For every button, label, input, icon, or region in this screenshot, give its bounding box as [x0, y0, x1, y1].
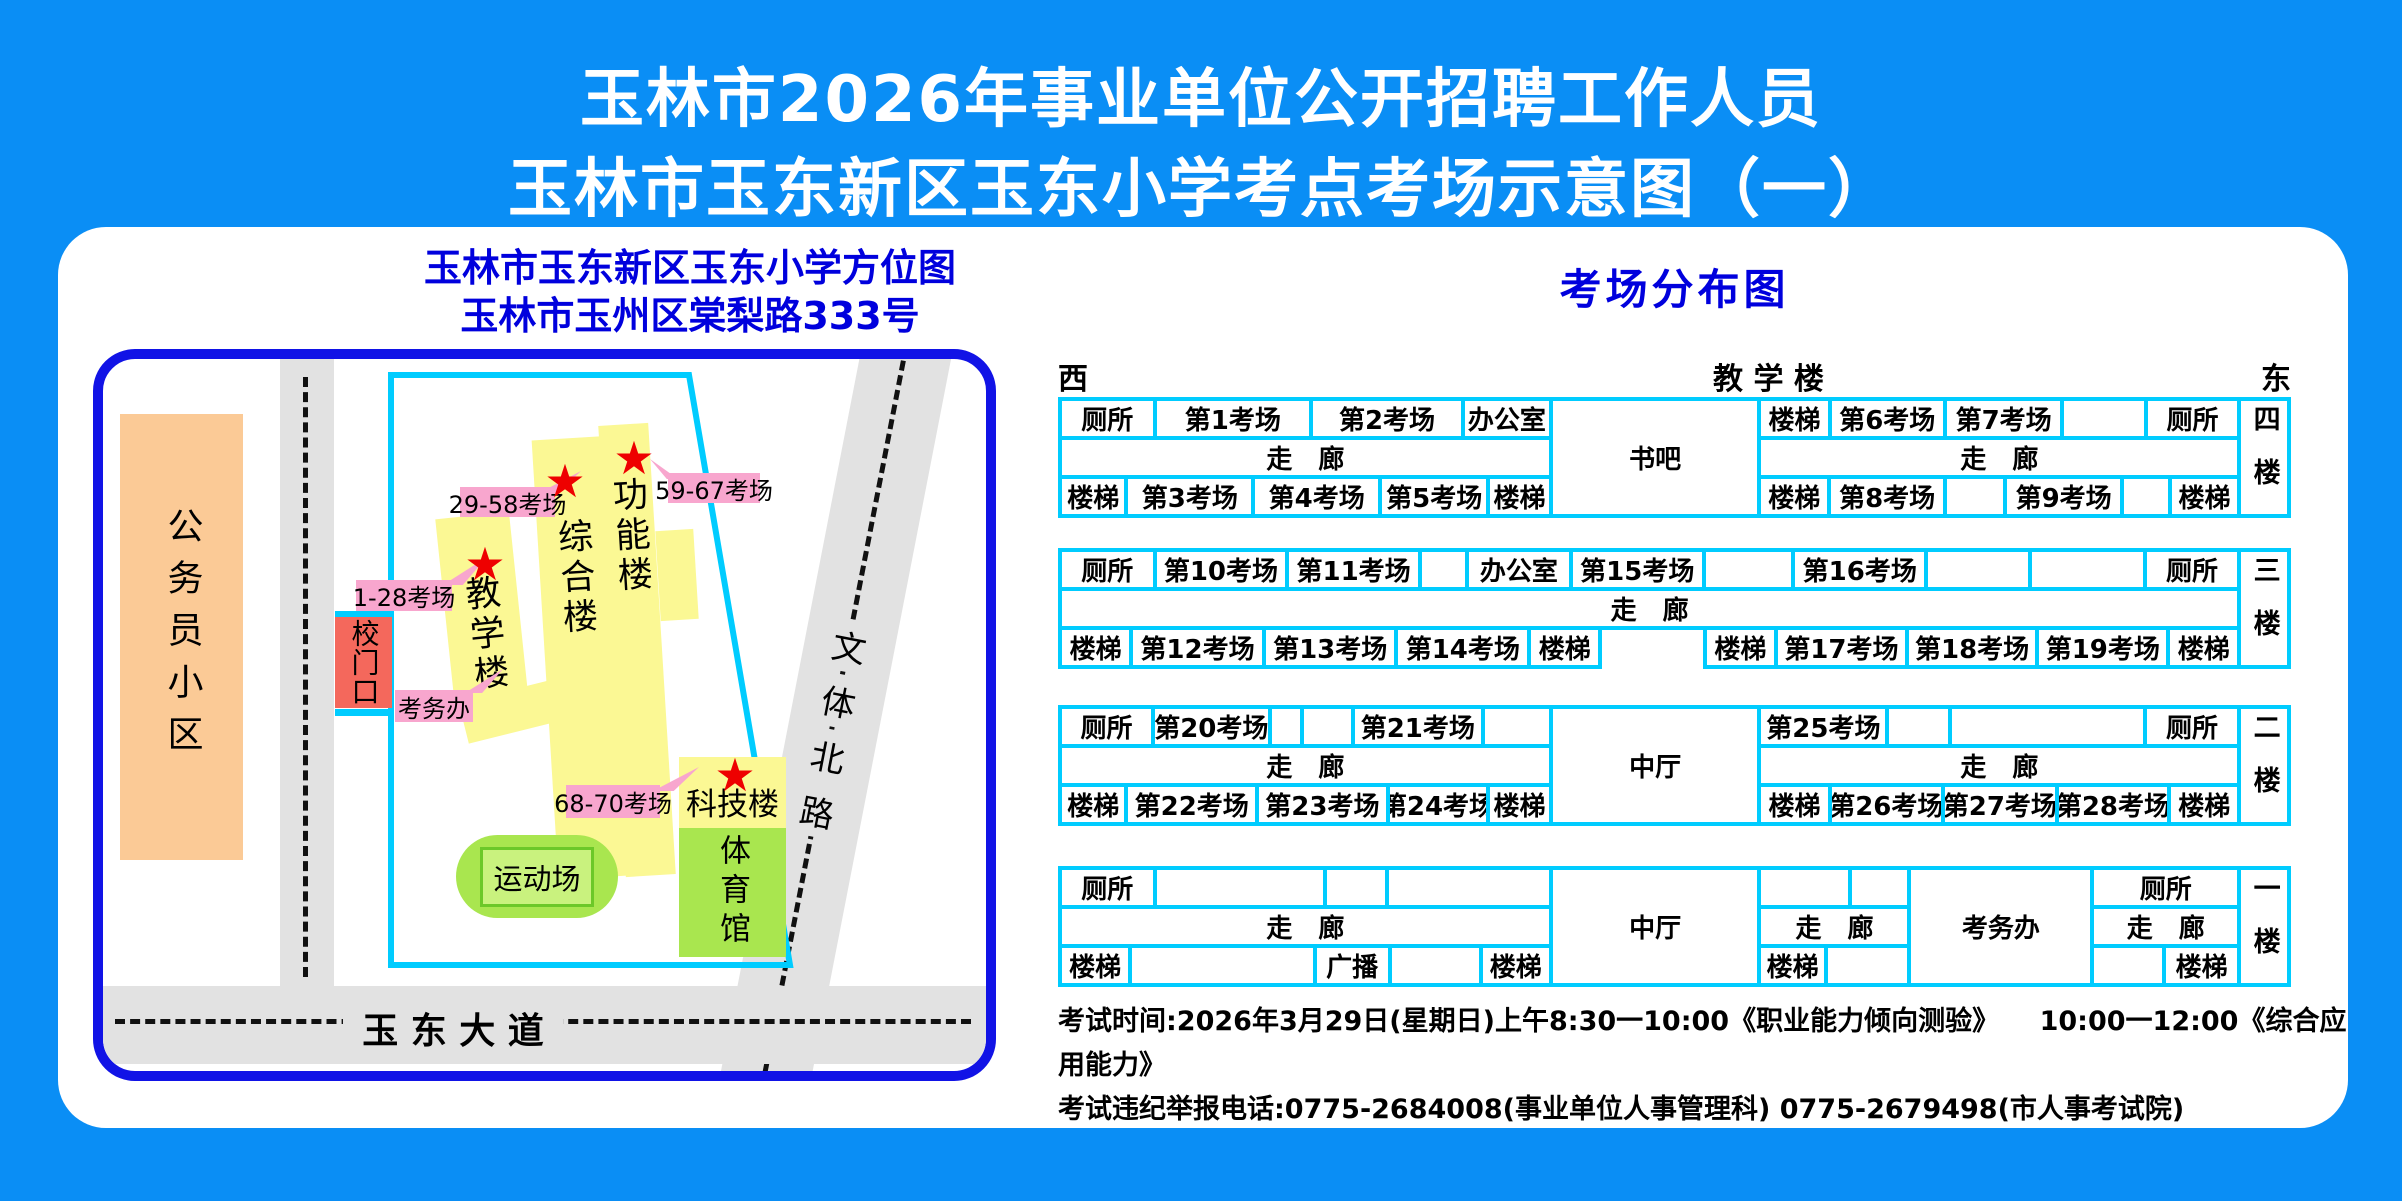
empty-cell [1388, 944, 1483, 987]
room-cell: 办公室 [1461, 397, 1553, 440]
room-cell: 走 廊 [1757, 744, 2241, 787]
room-cell: 楼梯 [2167, 783, 2241, 826]
floor-row: 厕所 [2090, 866, 2241, 909]
floor-row: 走 廊 [1757, 744, 2241, 787]
room-cell: 厕所 [2143, 705, 2241, 748]
floor-row: 楼梯 [2090, 944, 2241, 987]
floor-table-三楼: 厕所第10考场第11考场办公室第15考场第16考场厕所走 廊楼梯第12考场第13… [1058, 548, 2291, 669]
floor-row [1757, 866, 1911, 909]
floor-table-二楼: 厕所第20考场第21考场走 廊楼梯第22考场第23考场第24考场楼梯中厅第25考… [1058, 705, 2291, 826]
room-cell: 楼梯 [1058, 944, 1132, 987]
floor-row: 走 廊 [2090, 905, 2241, 948]
page-title-line1: 玉林市2026年事业单位公开招聘工作人员 [0, 48, 2402, 140]
floor-row: 走 廊 [1058, 744, 1553, 787]
room-cell: 厕所 [2144, 397, 2242, 440]
room-cell: 楼梯 [1058, 475, 1128, 518]
room-cell: 厕所 [1058, 705, 1155, 748]
room-cell: 第8考场 [1827, 475, 1947, 518]
report-phone-note: 考试违纪举报电话:0775-2684008(事业单位人事管理科) 0775-26… [1058, 1088, 2348, 1132]
empty-cell [1323, 866, 1388, 909]
room-cell: 第21考场 [1351, 705, 1486, 748]
building-teaching-label: 教学楼 [453, 573, 516, 698]
empty-cell [1948, 705, 2146, 748]
floor-table-一楼: 厕所走 廊楼梯广播楼梯中厅走 廊楼梯考务办厕所走 廊楼梯一楼 [1058, 866, 2291, 987]
playground: 运动场 [456, 835, 618, 918]
exam-site-star-icon: ★ [612, 436, 656, 480]
empty-cell [1268, 705, 1304, 748]
empty-cell [1943, 475, 2007, 518]
floor-row: 走 廊 [1058, 587, 2241, 630]
floor-row: 楼梯第12考场第13考场第14考场楼梯楼梯第17考场第18考场第19考场楼梯 [1058, 626, 2241, 669]
floor-row: 楼梯第8考场第9考场楼梯 [1757, 475, 2241, 518]
hall-cell: 中厅 [1549, 705, 1762, 826]
building-complex-label: 综合楼 [546, 517, 604, 640]
room-cell: 楼梯 [2166, 626, 2241, 669]
room-cell: 走 廊 [1058, 436, 1553, 479]
room-cell: 第28考场 [2055, 783, 2172, 826]
room-cell: 楼梯 [1703, 626, 1778, 669]
floor-number-label: 三楼 [2245, 556, 2284, 662]
floor-row: 楼梯第22考场第23考场第24考场楼梯 [1058, 783, 1553, 826]
exam-office-label: 考务办 [395, 690, 473, 722]
exam-site-star-icon: ★ [713, 753, 757, 797]
room-cell: 第24考场 [1386, 783, 1490, 826]
room-cell: 第2考场 [1309, 397, 1465, 440]
playground-label: 运动场 [480, 847, 593, 907]
floor-row: 楼梯广播楼梯 [1058, 944, 1553, 987]
floor-row: 第25考场厕所 [1757, 705, 2241, 748]
room-cell: 第1考场 [1153, 397, 1314, 440]
room-cell: 第16考场 [1791, 548, 1928, 591]
floor-section: 走 廊楼梯 [1757, 866, 1911, 987]
empty-cell [1924, 548, 2032, 591]
room-cell: 第12考场 [1129, 626, 1266, 669]
room-cell: 楼梯 [1527, 626, 1602, 669]
room-cell: 楼梯 [1486, 475, 1553, 518]
room-cell: 走 廊 [1058, 905, 1553, 948]
map-content: 文体北路 玉 东 大 道 公务员小区 校门口 教学楼 [103, 359, 986, 1071]
room-cell: 楼梯 [1058, 783, 1128, 826]
floor-table-四楼: 厕所第1考场第2考场办公室走 廊楼梯第3考场第4考场第5考场楼梯书吧楼梯第6考场… [1058, 397, 2291, 518]
room-cell: 第23考场 [1255, 783, 1390, 826]
badge-rooms-68-70: 68-70考场 [566, 785, 660, 818]
badge-rooms-29-58: 29-58考场 [460, 487, 555, 517]
empty-cell [1757, 866, 1851, 909]
room-cell: 楼梯 [1757, 783, 1831, 826]
room-cell: 第26考场 [1828, 783, 1946, 826]
floor-row: 走 廊 [1058, 905, 1553, 948]
empty-cell [1418, 548, 1469, 591]
room-cell: 第3考场 [1124, 475, 1255, 518]
badge-rooms-59-67: 59-67考场 [668, 473, 760, 503]
empty-cell [2090, 944, 2166, 987]
room-cell: 第17考场 [1774, 626, 1909, 669]
empty-cell [2120, 475, 2172, 518]
empty-cell [1702, 548, 1796, 591]
empty-cell [1848, 866, 1912, 909]
empty-cell [1153, 866, 1328, 909]
hall-cell: 中厅 [1549, 866, 1762, 987]
room-cell: 第6考场 [1828, 397, 1947, 440]
badge-rooms-1-28: 1-28考场 [356, 580, 452, 611]
floor-row: 楼梯第3考场第4考场第5考场楼梯 [1058, 475, 1553, 518]
room-cell: 楼梯 [1757, 397, 1831, 440]
floor-section: 厕所走 廊楼梯 [2090, 866, 2241, 987]
room-cell: 第11考场 [1285, 548, 1422, 591]
empty-cell [1128, 944, 1317, 987]
exam-time-note: 考试时间:2026年3月29日(星期日)上午8:30一10:00《职业能力倾向测… [1058, 1000, 2348, 1088]
room-cell: 第25考场 [1757, 705, 1889, 748]
floor-label-cell: 四楼 [2237, 397, 2291, 518]
empty-cell [1481, 705, 1553, 748]
hall-cell: 书吧 [1549, 397, 1762, 518]
floor-row: 厕所第20考场第21考场 [1058, 705, 1553, 748]
room-cell: 楼梯 [2162, 944, 2241, 987]
floor-section: 厕所第10考场第11考场办公室第15考场第16考场厕所走 廊楼梯第12考场第13… [1058, 548, 2241, 669]
room-cell: 楼梯 [1757, 475, 1831, 518]
floor-row: 楼梯第6考场第7考场厕所 [1757, 397, 2241, 440]
room-cell: 广播 [1313, 944, 1392, 987]
room-cell: 厕所 [1058, 866, 1157, 909]
room-cell: 楼梯 [1757, 944, 1827, 987]
room-cell: 第14考场 [1394, 626, 1531, 669]
building-function-annex [655, 529, 698, 621]
room-cell: 楼梯 [1479, 944, 1553, 987]
floor-number-label: 二楼 [2245, 713, 2284, 819]
room-cell: 办公室 [1465, 548, 1573, 591]
room-cell: 厕所 [1058, 548, 1157, 591]
room-cell: 第19考场 [2035, 626, 2170, 669]
empty-cell [1598, 626, 1706, 669]
floor-label-cell: 三楼 [2237, 548, 2291, 669]
building-function-label: 功能楼 [601, 475, 659, 598]
floor-section: 厕所第20考场第21考场走 廊楼梯第22考场第23考场第24考场楼梯 [1058, 705, 1553, 826]
floor-row: 楼梯 [1757, 944, 1911, 987]
empty-cell [2028, 548, 2147, 591]
room-cell: 第7考场 [1943, 397, 2064, 440]
floor-row: 厕所第1考场第2考场办公室 [1058, 397, 1553, 440]
direction-strip: 西 教 学 楼 东 [1058, 354, 2291, 390]
hall-cell: 考务办 [1907, 866, 2094, 987]
room-cell: 第5考场 [1378, 475, 1490, 518]
empty-cell [1885, 705, 1952, 748]
room-cell: 第27考场 [1941, 783, 2059, 826]
floor-row: 走 廊 [1757, 436, 2241, 479]
empty-cell [2060, 397, 2147, 440]
distribution-title: 考场分布图 [1058, 256, 2291, 317]
floor-number-label: 四楼 [2245, 405, 2284, 511]
school-gate: 校门口 [335, 617, 392, 708]
floor-section: 厕所第1考场第2考场办公室走 廊楼梯第3考场第4考场第5考场楼梯 [1058, 397, 1553, 518]
room-cell: 第20考场 [1151, 705, 1271, 748]
room-cell: 楼梯 [2168, 475, 2242, 518]
empty-cell [1300, 705, 1355, 748]
room-cell: 厕所 [2090, 866, 2241, 909]
room-cell: 第4考场 [1251, 475, 1382, 518]
room-cell: 走 廊 [1058, 744, 1553, 787]
room-cell: 第15考场 [1569, 548, 1706, 591]
room-cell: 第9考场 [2003, 475, 2123, 518]
floor-section: 楼梯第6考场第7考场厕所走 廊楼梯第8考场第9考场楼梯 [1757, 397, 2241, 518]
page-title-line2: 玉林市玉东新区玉东小学考点考场示意图（一） [0, 138, 2402, 230]
room-cell: 走 廊 [1757, 436, 2241, 479]
floor-row: 厕所第10考场第11考场办公室第15考场第16考场厕所 [1058, 548, 2241, 591]
room-cell: 厕所 [1058, 397, 1157, 440]
floor-row: 厕所 [1058, 866, 1553, 909]
empty-cell [1385, 866, 1553, 909]
room-cell: 走 廊 [1757, 905, 1911, 948]
floor-row: 走 廊 [1757, 905, 1911, 948]
floor-section: 第25考场厕所走 廊楼梯第26考场第27考场第28考场楼梯 [1757, 705, 2241, 826]
poster-root: 玉林市2026年事业单位公开招聘工作人员 玉林市玉东新区玉东小学考点考场示意图（… [0, 0, 2402, 1201]
footer-notes: 考试时间:2026年3月29日(星期日)上午8:30一10:00《职业能力倾向测… [1058, 1000, 2348, 1132]
floor-label-cell: 一楼 [2237, 866, 2291, 987]
room-cell: 楼梯 [1058, 626, 1133, 669]
building-gym-label: 体育馆 [710, 834, 755, 951]
exam-site-star-icon: ★ [543, 459, 587, 503]
empty-cell [1824, 944, 1912, 987]
floor-tables: 厕所第1考场第2考场办公室走 廊楼梯第3考场第4考场第5考场楼梯书吧楼梯第6考场… [1058, 397, 2291, 987]
floor-number-label: 一楼 [2245, 874, 2284, 980]
gate-label: 校门口 [344, 619, 384, 706]
exam-site-star-icon: ★ [463, 542, 507, 586]
room-cell: 第22考场 [1124, 783, 1259, 826]
floor-row: 走 廊 [1058, 436, 1553, 479]
floor-row: 楼梯第26考场第27考场第28考场楼梯 [1757, 783, 2241, 826]
room-cell: 第13考场 [1262, 626, 1399, 669]
room-cell: 走 廊 [2090, 905, 2241, 948]
building-gym: 体育馆 [679, 828, 786, 957]
room-cell: 楼梯 [1486, 783, 1553, 826]
floor-section: 厕所走 廊楼梯广播楼梯 [1058, 866, 1553, 987]
room-cell: 走 廊 [1058, 587, 2241, 630]
room-cell: 厕所 [2143, 548, 2242, 591]
location-map: 文体北路 玉 东 大 道 公务员小区 校门口 教学楼 [93, 349, 996, 1081]
room-cell: 第18考场 [1905, 626, 2040, 669]
floor-label-cell: 二楼 [2237, 705, 2291, 826]
east-label: 东 [2261, 354, 2291, 398]
gate-boundary-bar [335, 709, 392, 716]
west-label: 西 [1058, 354, 1088, 398]
teaching-building-header: 教 学 楼 [1713, 354, 1824, 398]
room-cell: 第10考场 [1153, 548, 1290, 591]
